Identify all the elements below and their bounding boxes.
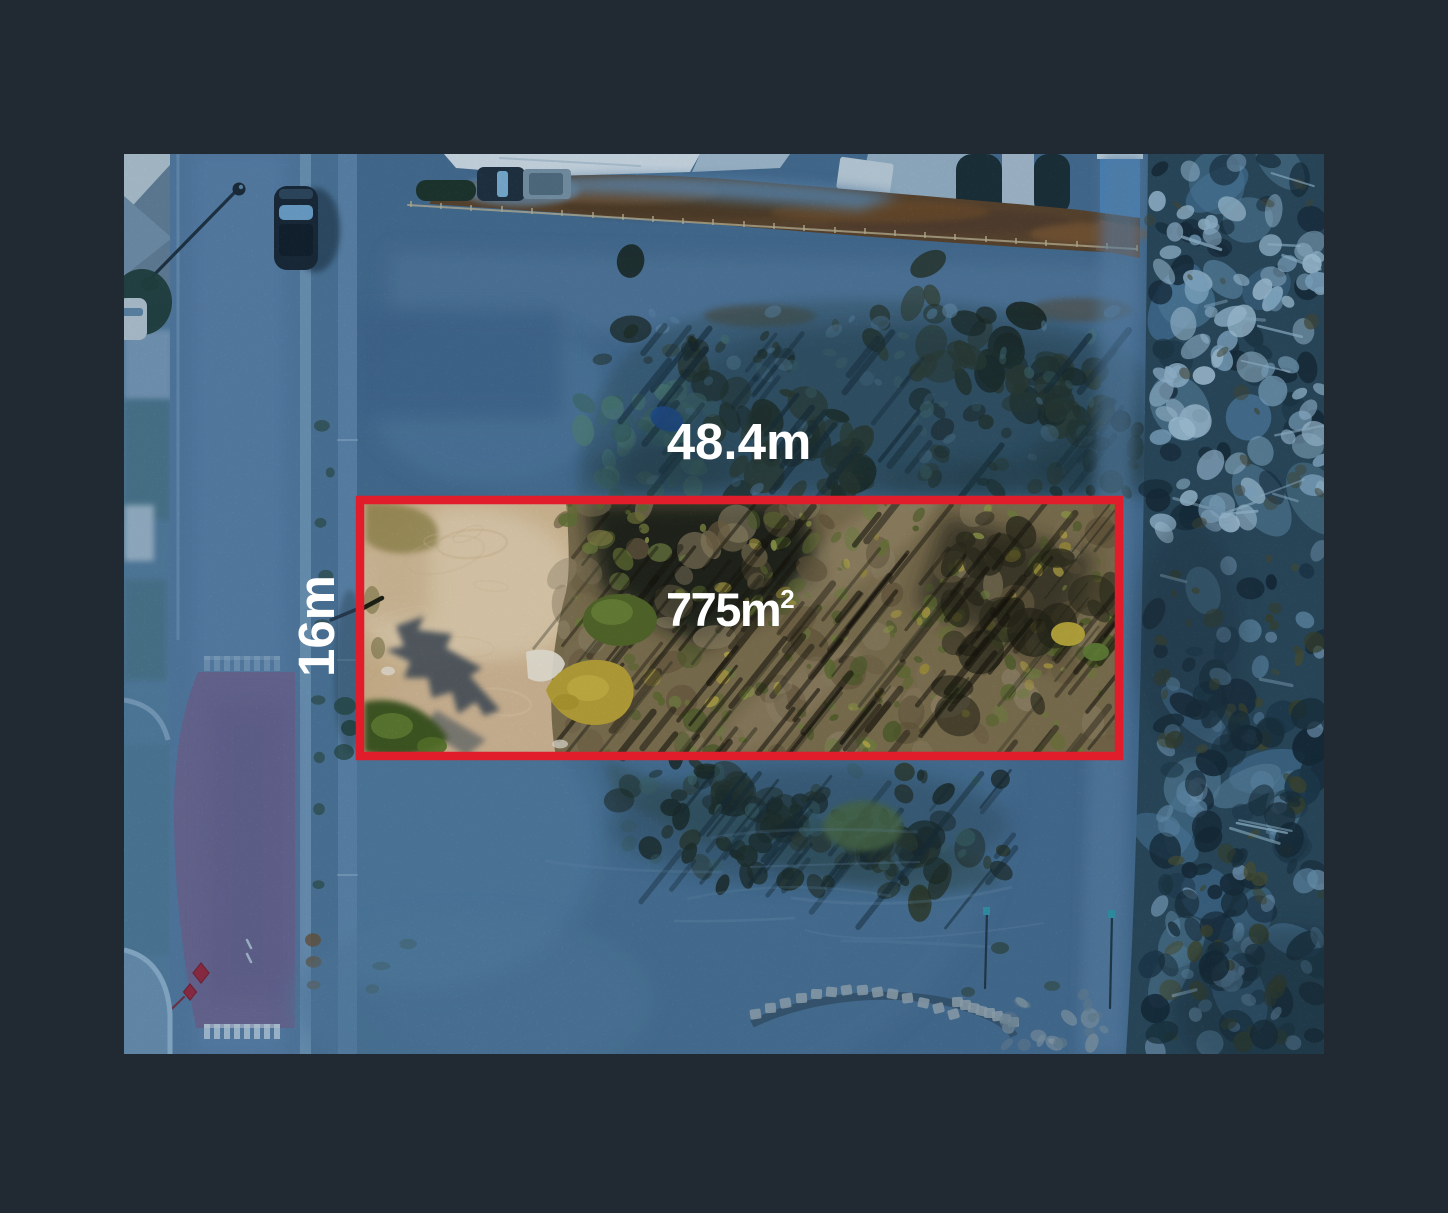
svg-text:775m2: 775m2: [666, 583, 794, 636]
svg-text:48.4m: 48.4m: [667, 413, 812, 470]
svg-text:16m: 16m: [288, 575, 345, 677]
